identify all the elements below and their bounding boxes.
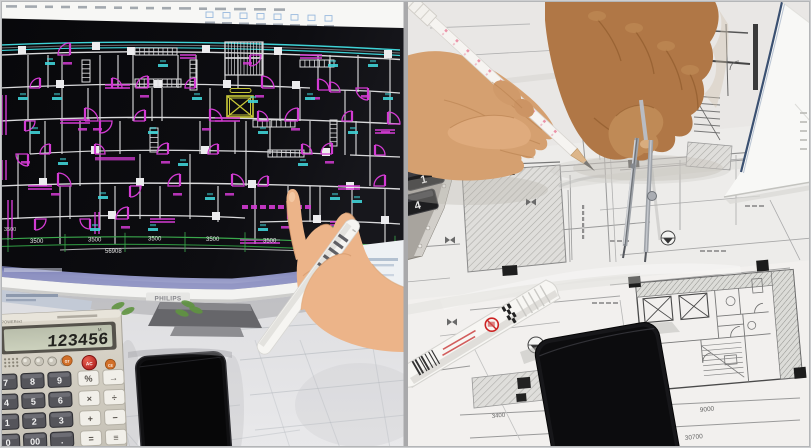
svg-text:%: % xyxy=(84,374,92,384)
svg-text:3500: 3500 xyxy=(30,239,44,245)
svg-text:POWERext: POWERext xyxy=(1,319,23,325)
svg-text:≡: ≡ xyxy=(113,432,119,442)
svg-text:3500: 3500 xyxy=(148,237,162,243)
svg-text:3500: 3500 xyxy=(263,239,277,245)
svg-text:1: 1 xyxy=(5,418,10,428)
svg-text:123456: 123456 xyxy=(47,331,109,353)
svg-text:3500: 3500 xyxy=(4,227,16,233)
svg-text:×: × xyxy=(86,394,92,404)
svg-text:→: → xyxy=(109,372,118,382)
svg-text:7: 7 xyxy=(3,378,8,388)
svg-text:2: 2 xyxy=(32,417,37,427)
svg-text:8: 8 xyxy=(30,377,35,387)
svg-text:6: 6 xyxy=(58,395,63,405)
svg-text:AC: AC xyxy=(86,361,94,366)
svg-text:−: − xyxy=(112,413,118,423)
svg-text:3: 3 xyxy=(59,415,64,425)
svg-text:.: . xyxy=(61,435,64,445)
svg-text:56908: 56908 xyxy=(105,249,122,255)
svg-text:00: 00 xyxy=(30,436,40,446)
svg-text:4: 4 xyxy=(4,398,9,408)
svg-text:3500: 3500 xyxy=(206,237,220,243)
svg-text:M: M xyxy=(98,327,102,332)
svg-text:CE: CE xyxy=(108,364,114,368)
svg-text:5: 5 xyxy=(31,397,36,407)
svg-text:+: + xyxy=(87,414,93,424)
svg-text:=: = xyxy=(88,434,94,444)
svg-text:÷: ÷ xyxy=(112,393,117,403)
svg-text:9: 9 xyxy=(57,375,62,385)
svg-text:3500: 3500 xyxy=(88,238,102,244)
